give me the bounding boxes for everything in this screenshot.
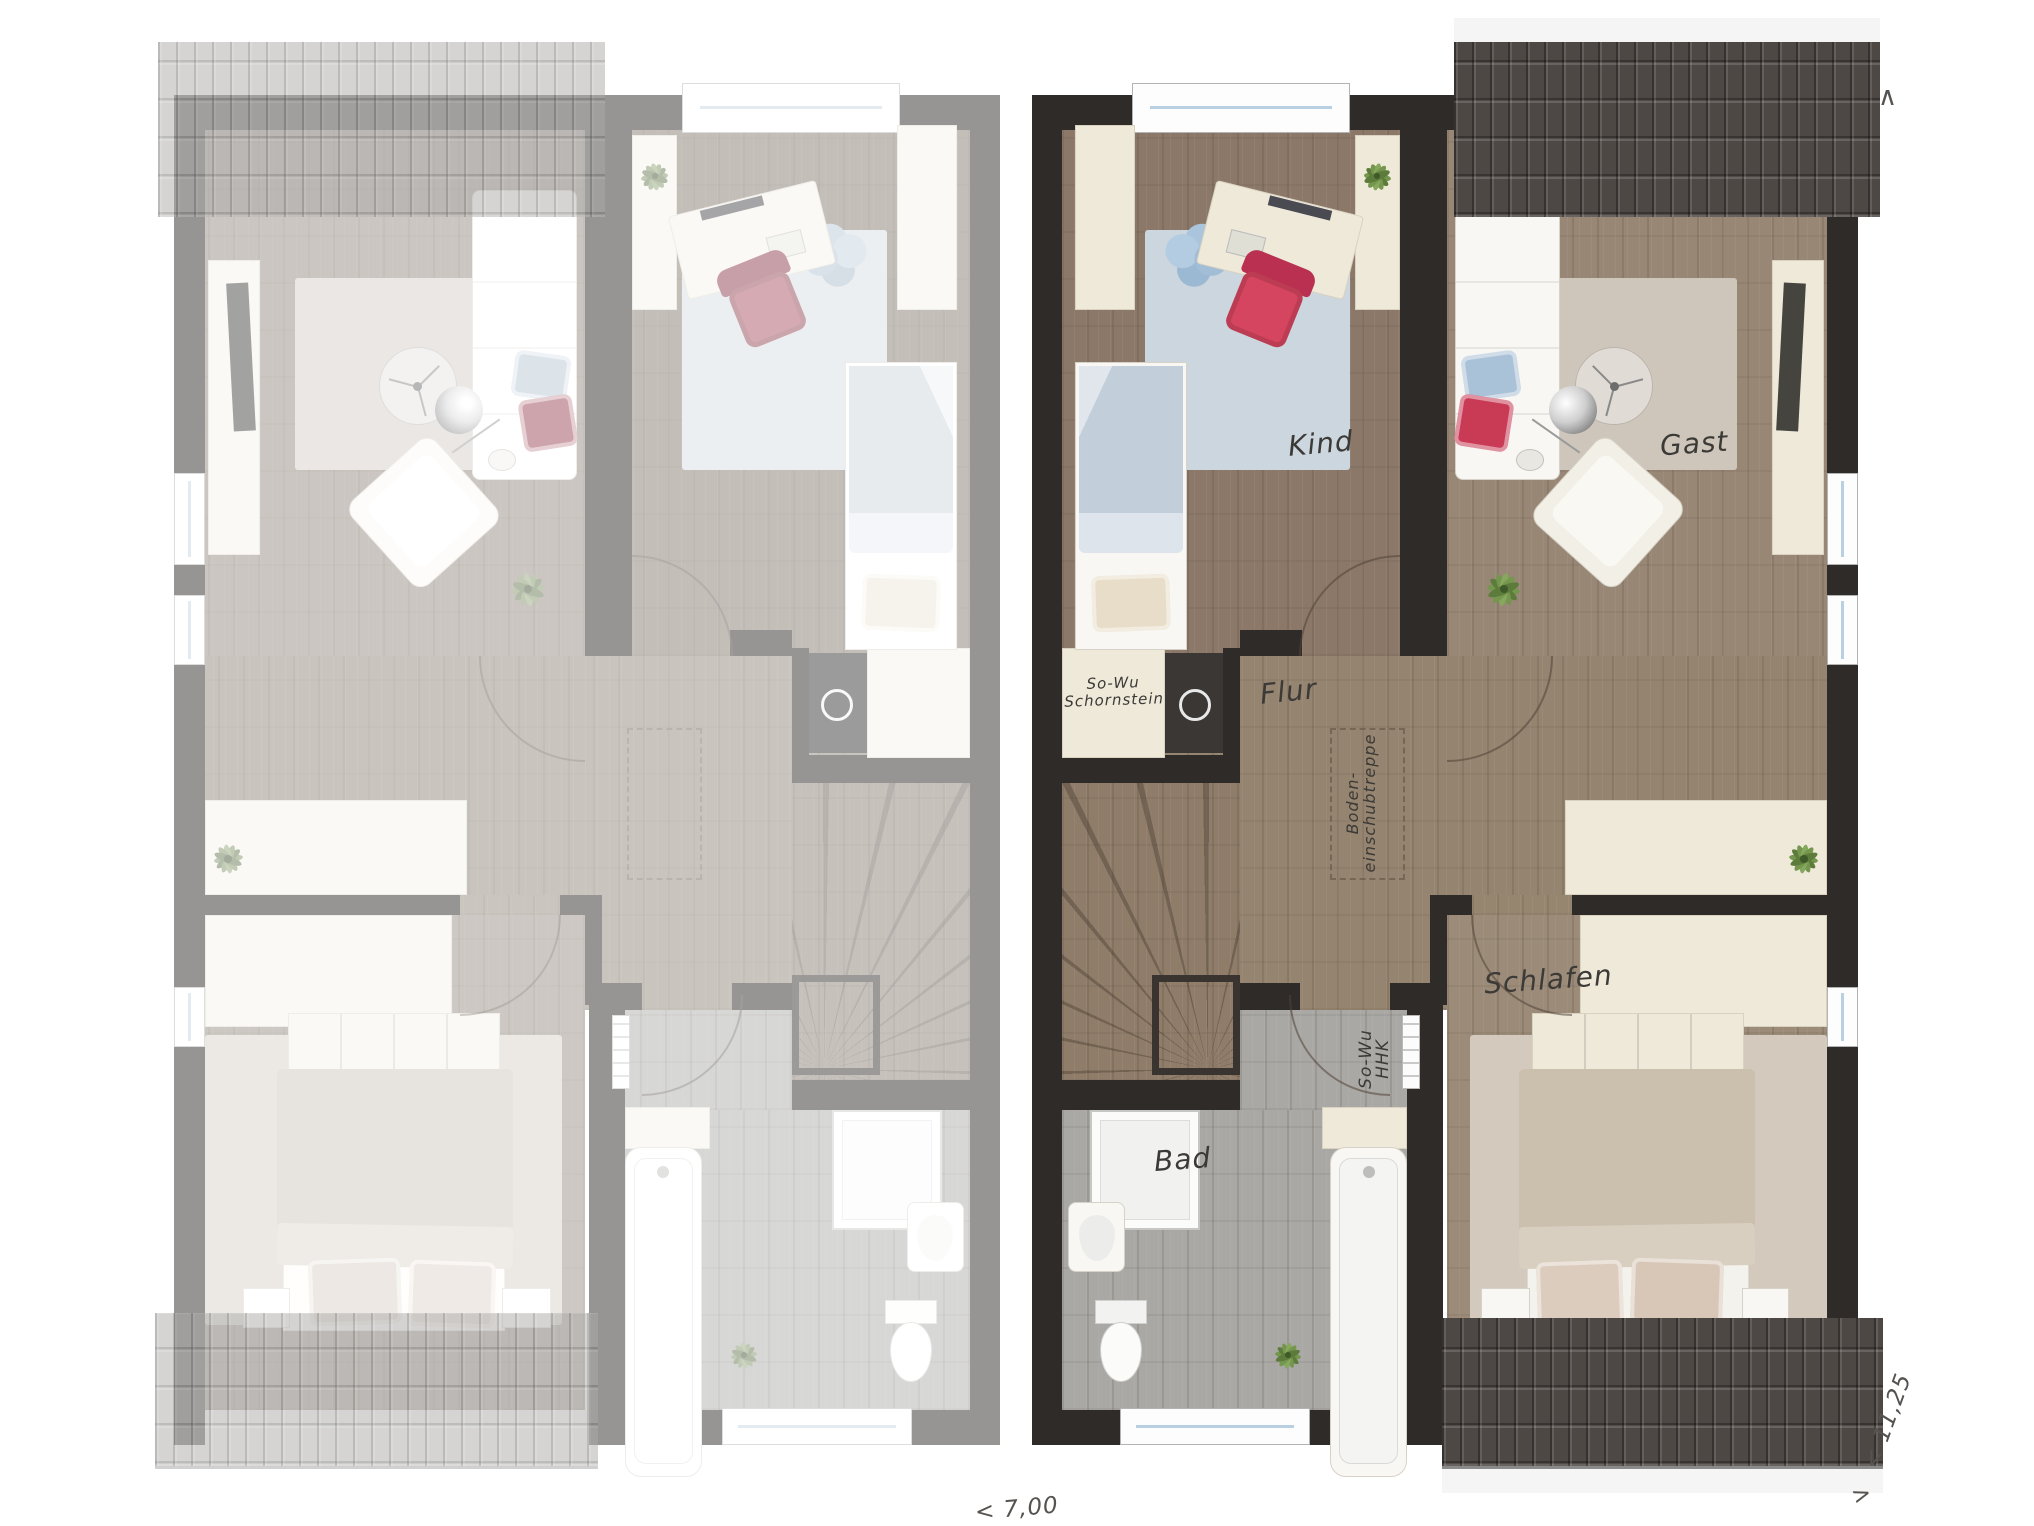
wall-bad-top-left	[1032, 1080, 1240, 1110]
flur-room-label: Flur	[1258, 672, 1318, 711]
door-arc-schlafen	[1472, 915, 1572, 1015]
window-kind-top	[682, 83, 900, 133]
unit-right: So-Wu Schornstein Boden- einschubtreppe	[1032, 75, 1858, 1445]
attic-label-line2: einschubtreppe	[1360, 734, 1379, 873]
chimney-block	[867, 648, 970, 758]
schlafen-cabinet	[205, 915, 452, 1027]
gast-plant-icon	[1468, 553, 1540, 625]
chimney-label: So-Wu Schornstein	[1063, 673, 1163, 710]
wall-kind-bottom	[730, 630, 792, 656]
roof-bottom-right	[1442, 1318, 1883, 1490]
dimension-width: < 7,00	[974, 1492, 1060, 1525]
bad-sink	[1068, 1202, 1125, 1272]
roof-top-right	[1454, 18, 1880, 217]
bad-toilet-icon	[887, 1300, 937, 1382]
window-gast-right-1	[174, 473, 205, 565]
roof-bottom-left	[155, 1313, 598, 1490]
schlafen-bed	[1519, 1069, 1755, 1329]
boiler-ring-icon	[1179, 689, 1211, 721]
gast-lamp-icon	[435, 386, 483, 434]
floorplan-canvas: So-Wu Schornstein Boden- einschubtreppe	[0, 0, 2034, 1526]
wall-bad-top-left	[792, 1080, 1000, 1110]
window-schlafen-right	[174, 987, 205, 1047]
bad-plant-icon	[716, 1327, 772, 1383]
door-arc-bad	[1290, 995, 1390, 1095]
gast-room-label: Gast	[1659, 425, 1730, 463]
gast-pillow-red	[1453, 393, 1514, 453]
schlafen-cabinet	[1580, 915, 1827, 1027]
wall-bad-top-b	[1390, 983, 1407, 1010]
flur-plant-icon	[196, 827, 260, 891]
wall-kind-bottom	[1240, 630, 1302, 656]
bad-towel-radiator-icon	[1402, 1015, 1420, 1089]
bad-towel-radiator-icon	[612, 1015, 630, 1089]
unit-left-mirrored	[174, 75, 1000, 1445]
wall-below-chimney	[1032, 755, 1240, 783]
door-arc-gast	[1447, 656, 1552, 761]
bad-plant-icon	[1260, 1327, 1316, 1383]
boiler-ring-icon	[821, 689, 853, 721]
kind-plant-icon	[1348, 147, 1406, 205]
wall-kind-gast	[1400, 95, 1447, 656]
bad-tub-deck	[625, 1107, 710, 1149]
gast-lamp-base-icon	[488, 449, 516, 471]
wall-below-chimney	[792, 755, 1000, 783]
bad-sink	[907, 1202, 964, 1272]
kind-plant-icon	[626, 147, 684, 205]
boiler-filler	[792, 648, 809, 783]
chimney-label-line2: Schornstein	[1064, 689, 1164, 710]
dimension-arrow-up-icon: ∧	[1878, 82, 1898, 112]
window-bad-bottom	[1120, 1408, 1310, 1445]
window-gast-right-1	[1827, 473, 1858, 565]
kind-room-label: Kind	[1287, 424, 1355, 463]
window-gast-right-2	[174, 595, 205, 665]
door-arc-kind	[632, 556, 732, 656]
stairwell-curb	[1152, 975, 1240, 1075]
door-gap-schlafen	[460, 895, 560, 915]
attic-ladder-label: Boden- einschubtreppe	[1344, 718, 1390, 888]
kind-wardrobe	[1075, 125, 1135, 310]
wall-right	[174, 95, 205, 1445]
bad-toilet-icon	[1095, 1300, 1145, 1382]
gast-pillow-red	[517, 393, 578, 453]
kind-wardrobe	[897, 125, 957, 310]
flur-plant-icon	[1772, 827, 1836, 891]
door-arc-gast	[480, 656, 585, 761]
bad-tub	[625, 1147, 702, 1477]
bad-tub	[1330, 1147, 1407, 1477]
gast-plant-icon	[492, 553, 564, 625]
bad-tub-deck	[1322, 1107, 1407, 1149]
schlafen-bed	[277, 1069, 513, 1329]
kind-bed	[845, 362, 957, 650]
window-kind-top	[1132, 83, 1350, 133]
gast-lamp-icon	[1549, 386, 1597, 434]
attic-ladder-outline	[627, 728, 702, 880]
schlafen-headboard	[1532, 1013, 1744, 1071]
window-schlafen-right	[1827, 987, 1858, 1047]
kind-bed	[1075, 362, 1187, 650]
bad-room-label: Bad	[1153, 1141, 1212, 1178]
window-gast-right-2	[1827, 595, 1858, 665]
door-gap-schlafen	[1472, 895, 1572, 915]
roof-top-left	[158, 18, 605, 217]
door-arc-kind	[1300, 556, 1400, 656]
wall-right	[1827, 95, 1858, 1445]
wall-bad-top-b	[625, 983, 642, 1010]
door-arc-bad	[642, 995, 742, 1095]
schlafen-headboard	[288, 1013, 500, 1071]
stairwell-curb	[792, 975, 880, 1075]
door-arc-schlafen	[460, 915, 560, 1015]
window-bad-bottom	[722, 1408, 912, 1445]
boiler-filler	[1223, 648, 1240, 783]
gast-lamp-base-icon	[1516, 449, 1544, 471]
